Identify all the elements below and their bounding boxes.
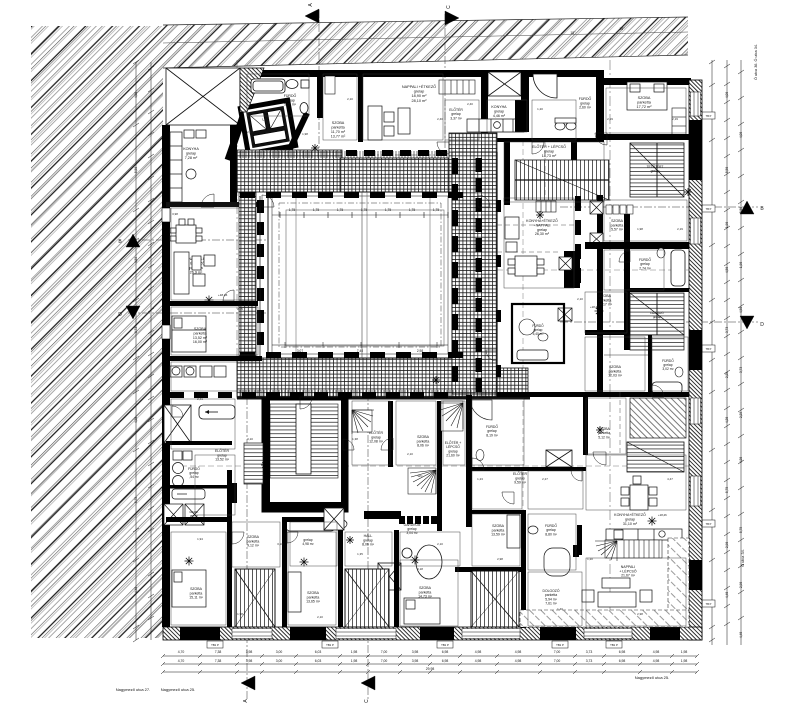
svg-text:Nagymező utca 27.: Nagymező utca 27. [116, 687, 150, 692]
svg-text:4,98: 4,98 [653, 659, 660, 663]
svg-text:ELŐTÉR + LÉPCSŐ: ELŐTÉR + LÉPCSŐ [532, 144, 566, 149]
svg-text:2,41: 2,41 [197, 397, 203, 401]
svg-text:7,61 m²: 7,61 m² [545, 602, 557, 606]
svg-text:1,75: 1,75 [313, 208, 319, 212]
svg-text:13,59 m²: 13,59 m² [491, 533, 506, 537]
svg-text:1,98: 1,98 [237, 612, 243, 616]
svg-text:TB1 P: TB1 P [556, 643, 564, 647]
svg-text:1,70: 1,70 [462, 247, 468, 251]
svg-text:+18,46: +18,46 [658, 513, 667, 517]
svg-text:1,98: 1,98 [351, 659, 358, 663]
svg-text:1,23: 1,23 [477, 477, 483, 481]
svg-text:2,10: 2,10 [577, 297, 583, 301]
svg-text:SZOBA: SZOBA [332, 121, 345, 125]
svg-text:2,19: 2,19 [672, 117, 678, 121]
svg-text:Nagymező utca 25.: Nagymező utca 25. [161, 687, 195, 692]
svg-text:KONYHA: KONYHA [183, 147, 199, 151]
svg-text:4,28: 4,28 [725, 417, 729, 423]
svg-text:7,00: 7,00 [554, 659, 561, 663]
svg-text:2,25: 2,25 [725, 372, 729, 378]
svg-text:3,73: 3,73 [586, 659, 593, 663]
svg-text:3,73: 3,73 [725, 327, 729, 333]
svg-text:KONYHA+ÉTKEZŐ: KONYHA+ÉTKEZŐ [614, 512, 646, 517]
svg-text:13,52 m²: 13,52 m² [215, 458, 230, 462]
svg-text:TB1 P: TB1 P [441, 643, 449, 647]
svg-text:4,98: 4,98 [515, 650, 522, 654]
svg-text:16,00 m²: 16,00 m² [193, 340, 208, 344]
svg-text:6,98: 6,98 [442, 650, 449, 654]
svg-text:13,65 m²: 13,65 m² [306, 600, 321, 604]
svg-text:4,98: 4,98 [475, 659, 482, 663]
svg-text:D: D [760, 322, 764, 328]
svg-text:7,00: 7,00 [554, 650, 561, 654]
svg-text:5,57 m²: 5,57 m² [611, 228, 624, 232]
svg-text:8,19 m²: 8,19 m² [486, 433, 498, 437]
svg-text:8,80 m²: 8,80 m² [545, 532, 557, 536]
svg-text:2,05: 2,05 [237, 307, 243, 311]
svg-text:9,12 m²: 9,12 m² [247, 544, 260, 548]
svg-text:2,10: 2,10 [437, 542, 443, 546]
svg-text:4,08: 4,08 [739, 132, 743, 138]
svg-text:1,75: 1,75 [385, 208, 391, 212]
svg-text:14,73 m²: 14,73 m² [418, 595, 433, 599]
svg-text:2,98: 2,98 [637, 612, 643, 616]
svg-text:3,98: 3,98 [246, 650, 253, 654]
svg-text:grelap: grelap [414, 90, 425, 94]
svg-text:2,25: 2,25 [739, 412, 743, 418]
svg-text:4,28: 4,28 [134, 417, 138, 423]
svg-text:2,10: 2,10 [247, 130, 253, 134]
svg-text:26,30 m²: 26,30 m² [535, 232, 550, 236]
svg-text:1,75: 1,75 [409, 208, 415, 212]
svg-text:SZOBA: SZOBA [638, 96, 651, 100]
svg-text:1,20: 1,20 [587, 557, 593, 561]
svg-text:+18,46: +18,46 [590, 305, 599, 309]
svg-text:3,98: 3,98 [412, 650, 419, 654]
svg-text:1,98: 1,98 [351, 650, 358, 654]
svg-text:6,98: 6,98 [442, 659, 449, 663]
svg-text:1,75: 1,75 [289, 208, 295, 212]
svg-text:4,28: 4,28 [739, 457, 743, 463]
svg-text:+ LÉPCSŐ: + LÉPCSŐ [619, 568, 636, 573]
svg-text:1,75: 1,75 [361, 208, 367, 212]
svg-text:4,48: 4,48 [134, 587, 138, 593]
svg-text:4,58: 4,58 [739, 307, 743, 313]
svg-text:4,46 m²: 4,46 m² [493, 114, 506, 118]
svg-text:parketta: parketta [194, 331, 207, 335]
svg-text:3,10: 3,10 [277, 542, 283, 546]
svg-text:SZOBA: SZOBA [194, 327, 207, 331]
svg-text:parketta: parketta [331, 126, 345, 130]
svg-text:6,03: 6,03 [315, 650, 322, 654]
svg-text:Ó utca 34.: Ó utca 34. [740, 549, 745, 567]
svg-text:2,98: 2,98 [739, 582, 743, 588]
svg-text:grelap: grelap [653, 315, 662, 319]
svg-text:4,98 m²: 4,98 m² [302, 542, 314, 546]
svg-text:grelap: grelap [186, 152, 196, 156]
svg-text:14,17 m²: 14,17 m² [598, 303, 613, 307]
svg-text:TB1 P: TB1 P [326, 643, 334, 647]
svg-text:5,58: 5,58 [725, 167, 729, 173]
svg-text:WC: WC [418, 474, 424, 478]
svg-text:3,73: 3,73 [586, 650, 593, 654]
svg-text:2,19: 2,19 [677, 227, 683, 231]
svg-text:KONYHA+ÉTKEZŐ: KONYHA+ÉTKEZŐ [526, 218, 558, 223]
svg-text:31,10 m²: 31,10 m² [623, 522, 638, 526]
svg-text:3,98: 3,98 [412, 659, 419, 663]
svg-text:FÜRDŐ: FÜRDŐ [579, 96, 592, 101]
svg-text:2,98: 2,98 [725, 542, 729, 548]
svg-text:1,40: 1,40 [557, 607, 563, 611]
svg-text:8,06 m²: 8,06 m² [362, 543, 375, 547]
svg-text:FÜRDŐ: FÜRDŐ [284, 93, 297, 98]
svg-text:12,08 m²: 12,08 m² [369, 440, 384, 444]
svg-text:18,73 m²: 18,73 m² [542, 154, 557, 158]
svg-text:TB P: TB P [706, 207, 712, 211]
svg-text:7,00: 7,00 [381, 650, 388, 654]
svg-text:4,08: 4,08 [134, 92, 138, 98]
svg-text:5,40 m²: 5,40 m² [533, 332, 544, 336]
svg-text:18,90 m²: 18,90 m² [412, 94, 428, 98]
svg-text:12,03 m²: 12,03 m² [608, 374, 623, 378]
svg-text:2,98: 2,98 [497, 557, 503, 561]
svg-text:1,75: 1,75 [337, 208, 343, 212]
svg-text:7,00: 7,00 [381, 659, 388, 663]
svg-text:5,12 m²: 5,12 m² [598, 435, 610, 439]
svg-text:2,40: 2,40 [437, 117, 443, 121]
svg-text:3,98: 3,98 [172, 212, 178, 216]
svg-text:15,11 m²: 15,11 m² [189, 596, 203, 600]
svg-text:7,28 m²: 7,28 m² [185, 156, 198, 160]
svg-text:6,03: 6,03 [315, 659, 322, 663]
svg-text:3,37 m²: 3,37 m² [450, 116, 462, 120]
svg-text:4,08: 4,08 [725, 92, 729, 98]
svg-text:+NAPPALI: +NAPPALI [533, 223, 550, 227]
svg-text:3,00: 3,00 [276, 650, 283, 654]
svg-text:NAPPALI +ÉTKEZŐ: NAPPALI +ÉTKEZŐ [402, 84, 436, 89]
svg-text:7,38: 7,38 [215, 650, 222, 654]
svg-text:13,52 m²: 13,52 m² [193, 336, 208, 340]
svg-text:Ó utca 36. Ó utca 34.: Ó utca 36. Ó utca 34. [753, 44, 758, 80]
svg-text:3,02 m²: 3,02 m² [662, 367, 674, 371]
svg-text:grelap: grelap [494, 109, 504, 113]
svg-text:29,98: 29,98 [426, 667, 435, 671]
svg-text:1,20: 1,20 [537, 107, 543, 111]
svg-text:8,06 m²: 8,06 m² [417, 444, 430, 448]
svg-text:4,55: 4,55 [134, 257, 138, 263]
svg-text:1,38: 1,38 [352, 437, 358, 441]
svg-text:28,10 m²: 28,10 m² [412, 99, 428, 103]
svg-text:4,48: 4,48 [739, 632, 743, 638]
svg-text:grelap: grelap [651, 169, 660, 173]
svg-text:D: D [118, 312, 122, 318]
svg-text:TB P: TB P [706, 347, 712, 351]
svg-text:1,98: 1,98 [681, 659, 688, 663]
svg-text:5,75: 5,75 [725, 487, 729, 493]
svg-text:TB1 P: TB1 P [211, 643, 219, 647]
svg-text:21,60 m²: 21,60 m² [446, 454, 460, 458]
svg-text:7,38: 7,38 [215, 659, 222, 663]
svg-text:3,73: 3,73 [739, 367, 743, 373]
svg-text:4,98: 4,98 [653, 650, 660, 654]
svg-text:1,98: 1,98 [739, 262, 743, 268]
svg-text:2,10: 2,10 [317, 615, 323, 619]
svg-text:5,27 m²: 5,27 m² [284, 103, 297, 107]
svg-text:1,35: 1,35 [357, 552, 363, 556]
svg-text:Nagymező utca 25.: Nagymező utca 25. [635, 675, 669, 680]
svg-text:1,98: 1,98 [681, 650, 688, 654]
svg-text:3,73: 3,73 [134, 327, 138, 333]
svg-text:2,27: 2,27 [542, 477, 548, 481]
svg-text:1,98: 1,98 [637, 227, 643, 231]
svg-text:18°: 18° [570, 31, 576, 35]
svg-text:4,48: 4,48 [725, 592, 729, 598]
svg-text:ELŐTÉR: ELŐTÉR [215, 448, 229, 453]
svg-text:9,59 m²: 9,59 m² [514, 481, 527, 485]
svg-text:parketta: parketta [637, 101, 652, 105]
svg-text:3,18: 3,18 [417, 567, 423, 571]
svg-text:2,19: 2,19 [607, 117, 613, 121]
svg-text:4,98: 4,98 [515, 659, 522, 663]
svg-text:2,40: 2,40 [467, 102, 473, 106]
svg-text:3,00: 3,00 [276, 659, 283, 663]
svg-text:3,98: 3,98 [246, 659, 253, 663]
svg-text:4,98: 4,98 [475, 650, 482, 654]
svg-text:TB P: TB P [706, 114, 712, 118]
svg-text:5,75: 5,75 [739, 527, 743, 533]
svg-text:5,75: 5,75 [134, 497, 138, 503]
svg-text:4,47: 4,47 [667, 477, 673, 481]
svg-text:1,98: 1,98 [302, 132, 308, 136]
svg-text:11,70 m²: 11,70 m² [331, 130, 346, 134]
svg-text:21,67 m²: 21,67 m² [621, 574, 636, 578]
svg-text:2,10: 2,10 [407, 452, 413, 456]
svg-text:6,98: 6,98 [619, 659, 626, 663]
svg-text:KONYHA: KONYHA [491, 105, 507, 109]
svg-text:grelap: grelap [625, 517, 635, 521]
svg-text:18°: 18° [619, 27, 625, 31]
svg-text:1,94: 1,94 [197, 537, 203, 541]
svg-text:grelap: grelap [544, 150, 554, 154]
svg-text:13,77 m²: 13,77 m² [331, 135, 346, 139]
svg-text:6,98: 6,98 [619, 650, 626, 654]
svg-text:2,60 m²: 2,60 m² [579, 106, 592, 110]
svg-text:TB1 P: TB1 P [610, 643, 618, 647]
svg-text:4,58: 4,58 [725, 267, 729, 273]
svg-text:3,10: 3,10 [247, 437, 253, 441]
svg-text:2,74 m²: 2,74 m² [639, 266, 651, 270]
svg-text:5,58: 5,58 [134, 167, 138, 173]
svg-text:,54 m²: ,54 m² [189, 475, 199, 479]
svg-text:1,75: 1,75 [433, 208, 439, 212]
svg-text:grelap: grelap [537, 228, 547, 232]
svg-text:C: C [364, 699, 370, 703]
svg-text:TB P: TB P [706, 522, 712, 526]
svg-text:1,98: 1,98 [725, 222, 729, 228]
svg-text:TB P: TB P [706, 602, 712, 606]
svg-text:4,70: 4,70 [178, 650, 185, 654]
svg-text:C: C [446, 5, 452, 9]
svg-text:ELŐTÉR: ELŐTÉR [513, 471, 527, 476]
svg-text:2,10: 2,10 [347, 97, 353, 101]
svg-text:4,70: 4,70 [178, 659, 185, 663]
svg-text:17,72 m²: 17,72 m² [637, 105, 653, 109]
